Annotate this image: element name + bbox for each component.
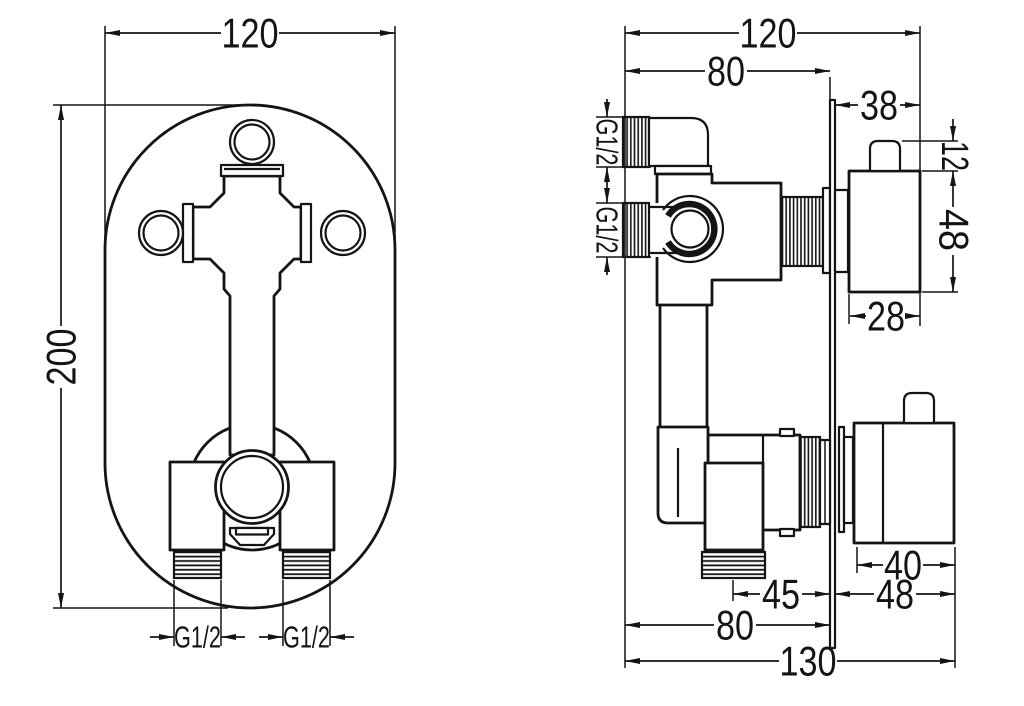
dim-label-body-width: 80	[707, 48, 745, 95]
dim-label-total-depth: 130	[780, 638, 837, 685]
dim-label-right-outlet-thread: G1/2	[283, 620, 330, 655]
lower-valve-housing	[658, 427, 708, 523]
lower-handle	[854, 423, 954, 543]
upper-trim-ring	[835, 190, 848, 272]
right-port	[321, 211, 365, 255]
dim-label-handle-height: 48	[931, 209, 978, 251]
lower-handle-knob	[904, 393, 934, 423]
top-inlet-thread-block	[623, 117, 649, 167]
left-port-collar	[183, 204, 193, 262]
inlet-elbow	[649, 118, 708, 166]
upper-handle	[849, 171, 920, 292]
side-port-elbow-bore	[672, 211, 709, 248]
upper-handle-knob	[870, 141, 900, 171]
dim-label-outlet-offset: 45	[762, 571, 800, 618]
lower-cartridge-thread	[800, 437, 820, 527]
dim-label-total-width: 120	[740, 10, 797, 57]
dim-label-faceplate-width: 120	[222, 10, 279, 57]
drawing-canvas: 120 200	[0, 0, 1024, 706]
lower-trim-ring-2	[844, 437, 853, 523]
control-knob-outer	[216, 451, 289, 524]
left-port	[139, 211, 183, 255]
dim-label-faceplate-height: 200	[38, 329, 85, 386]
dim-label-top-inlet-thread: G1/2	[590, 119, 625, 166]
bottom-inlet-thread-block	[623, 203, 649, 257]
outlet-block-right	[280, 462, 334, 550]
lower-outlet-thread	[702, 552, 765, 578]
lower-outlet-body	[705, 463, 763, 550]
dim-label-body-depth: 80	[716, 602, 754, 649]
dim-label-knob-height: 12	[933, 141, 975, 171]
dim-label-bottom-inlet-thread: G1/2	[590, 207, 625, 254]
cartridge-tab-top	[780, 429, 794, 436]
outlet-block-left	[170, 462, 224, 550]
top-port	[230, 120, 274, 164]
dim-label-left-outlet-thread: G1/2	[174, 620, 221, 655]
dim-label-trim-depth-top: 38	[860, 82, 898, 129]
lower-valve-notch-detail	[236, 528, 268, 535]
outlet-thread-left	[174, 552, 221, 578]
top-port-collar	[221, 165, 283, 176]
dim-label-handle-width-top: 28	[867, 293, 905, 340]
outlet-thread-right	[283, 552, 330, 578]
upper-cartridge-thread	[781, 197, 823, 266]
dim-label-trim-depth-bottom: 48	[876, 571, 914, 618]
technical-drawing-page: 120 200	[0, 0, 1024, 706]
cartridge-tab-bottom	[780, 529, 794, 536]
right-port-collar	[301, 204, 311, 262]
wall-plate	[830, 100, 835, 648]
